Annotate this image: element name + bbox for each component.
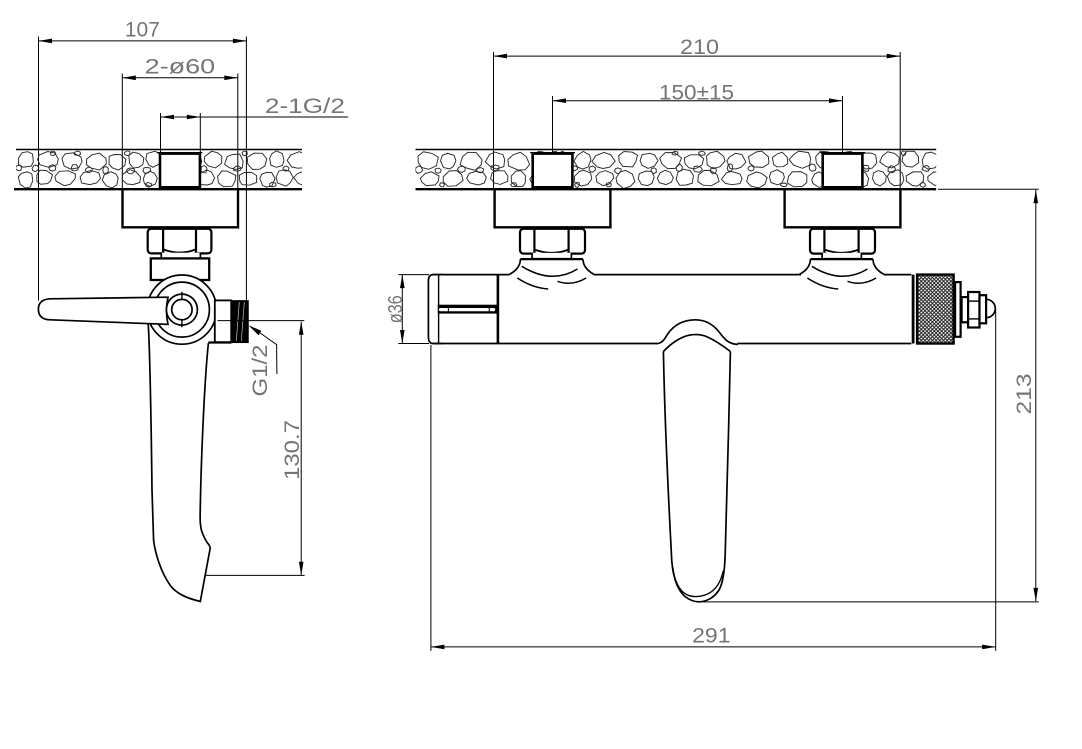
svg-text:2-ø60: 2-ø60 (145, 56, 216, 79)
svg-text:ø36: ø36 (385, 295, 407, 323)
svg-text:130.7: 130.7 (281, 420, 304, 480)
svg-text:291: 291 (692, 624, 731, 647)
svg-text:213: 213 (1013, 374, 1036, 415)
svg-text:150±15: 150±15 (659, 81, 734, 104)
svg-text:210: 210 (680, 36, 719, 59)
svg-text:G1/2: G1/2 (249, 345, 272, 397)
svg-text:107: 107 (125, 18, 160, 41)
svg-text:2-1G/2: 2-1G/2 (265, 95, 345, 118)
